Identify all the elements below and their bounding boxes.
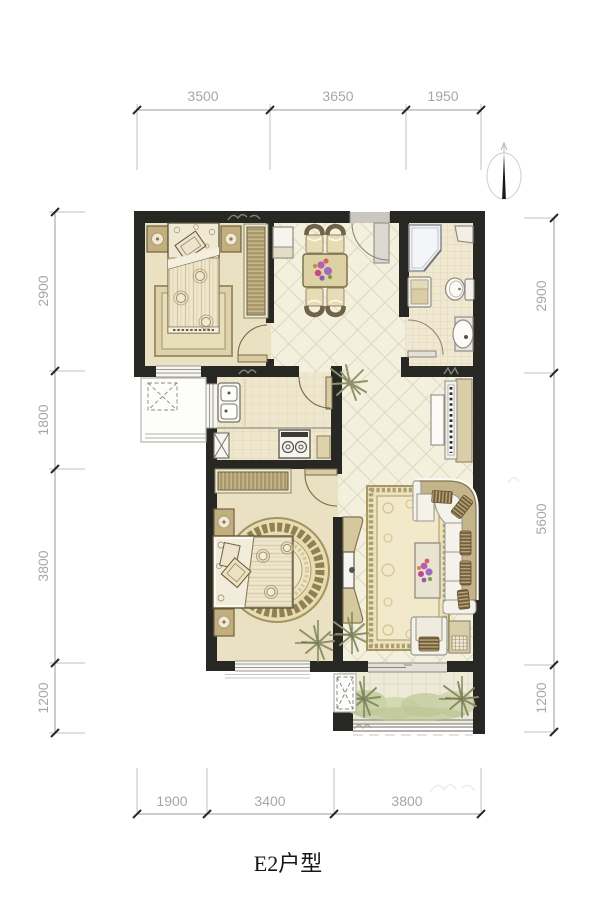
svg-text:1800: 1800 [35,404,51,435]
svg-text:1200: 1200 [35,682,51,713]
svg-text:3800: 3800 [391,793,422,809]
svg-text:3400: 3400 [254,793,285,809]
svg-text:2900: 2900 [533,280,549,311]
svg-text:1950: 1950 [427,88,458,104]
svg-text:1900: 1900 [156,793,187,809]
svg-text:3800: 3800 [35,550,51,581]
svg-text:1200: 1200 [533,682,549,713]
svg-text:2900: 2900 [35,275,51,306]
svg-text:5600: 5600 [533,503,549,534]
svg-text:3650: 3650 [322,88,353,104]
svg-text:3500: 3500 [187,88,218,104]
svg-text:E2户型: E2户型 [254,851,322,876]
